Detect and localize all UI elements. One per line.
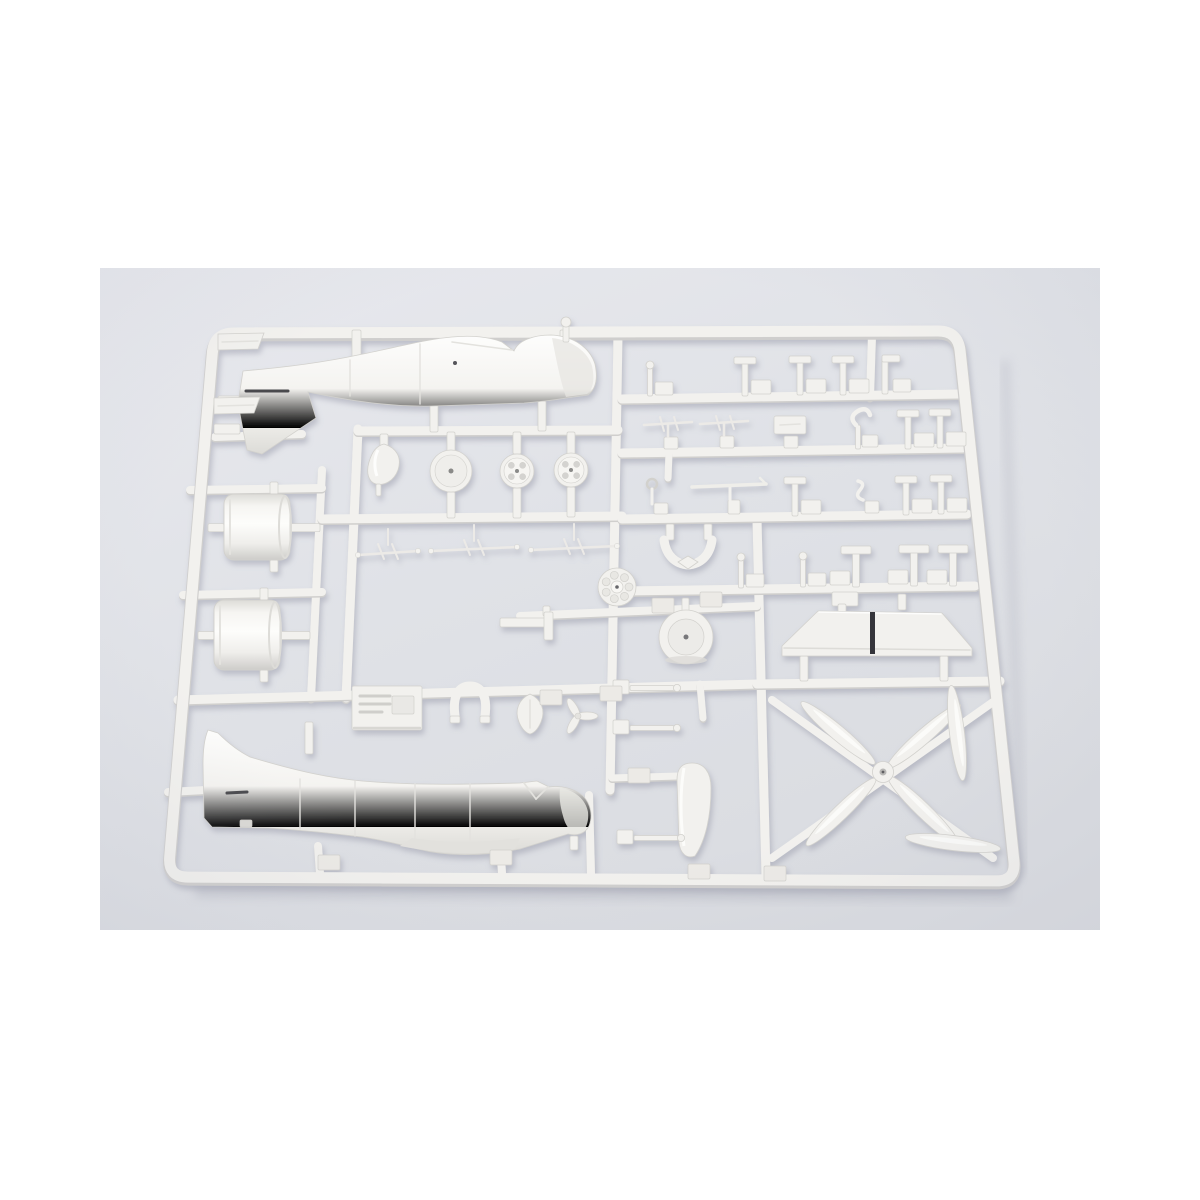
product-page bbox=[0, 0, 1200, 1200]
product-photo bbox=[0, 0, 1200, 1200]
vignette-overlay bbox=[100, 268, 1100, 930]
sprue-photo-canvas bbox=[0, 0, 1200, 1200]
photo-vignette bbox=[100, 268, 1100, 930]
